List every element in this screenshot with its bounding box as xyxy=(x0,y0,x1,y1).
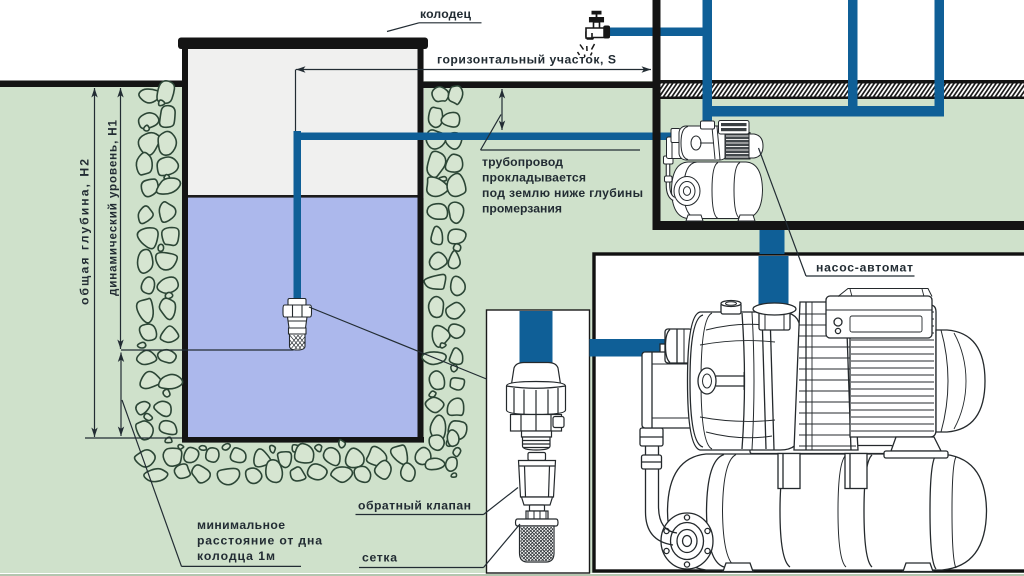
svg-text:промерзания: промерзания xyxy=(482,202,562,216)
svg-text:минимальное: минимальное xyxy=(197,518,285,532)
svg-text:динамический уровень, Н1: динамический уровень, Н1 xyxy=(107,119,120,296)
svg-text:сетка: сетка xyxy=(362,551,397,565)
svg-text:общая глубина, Н2: общая глубина, Н2 xyxy=(78,159,92,305)
svg-text:под землю ниже глубины: под землю ниже глубины xyxy=(482,186,643,200)
svg-text:расстояние от дна: расстояние от дна xyxy=(197,534,322,548)
svg-text:насос-автомат: насос-автомат xyxy=(816,261,913,275)
svg-text:колодца 1м: колодца 1м xyxy=(197,549,275,563)
svg-text:прокладывается: прокладывается xyxy=(482,171,586,185)
svg-text:колодец: колодец xyxy=(420,7,472,21)
svg-text:обратный клапан: обратный клапан xyxy=(358,499,471,513)
svg-text:горизонтальный участок, S: горизонтальный участок, S xyxy=(437,53,616,67)
svg-text:трубопровод: трубопровод xyxy=(482,155,563,169)
